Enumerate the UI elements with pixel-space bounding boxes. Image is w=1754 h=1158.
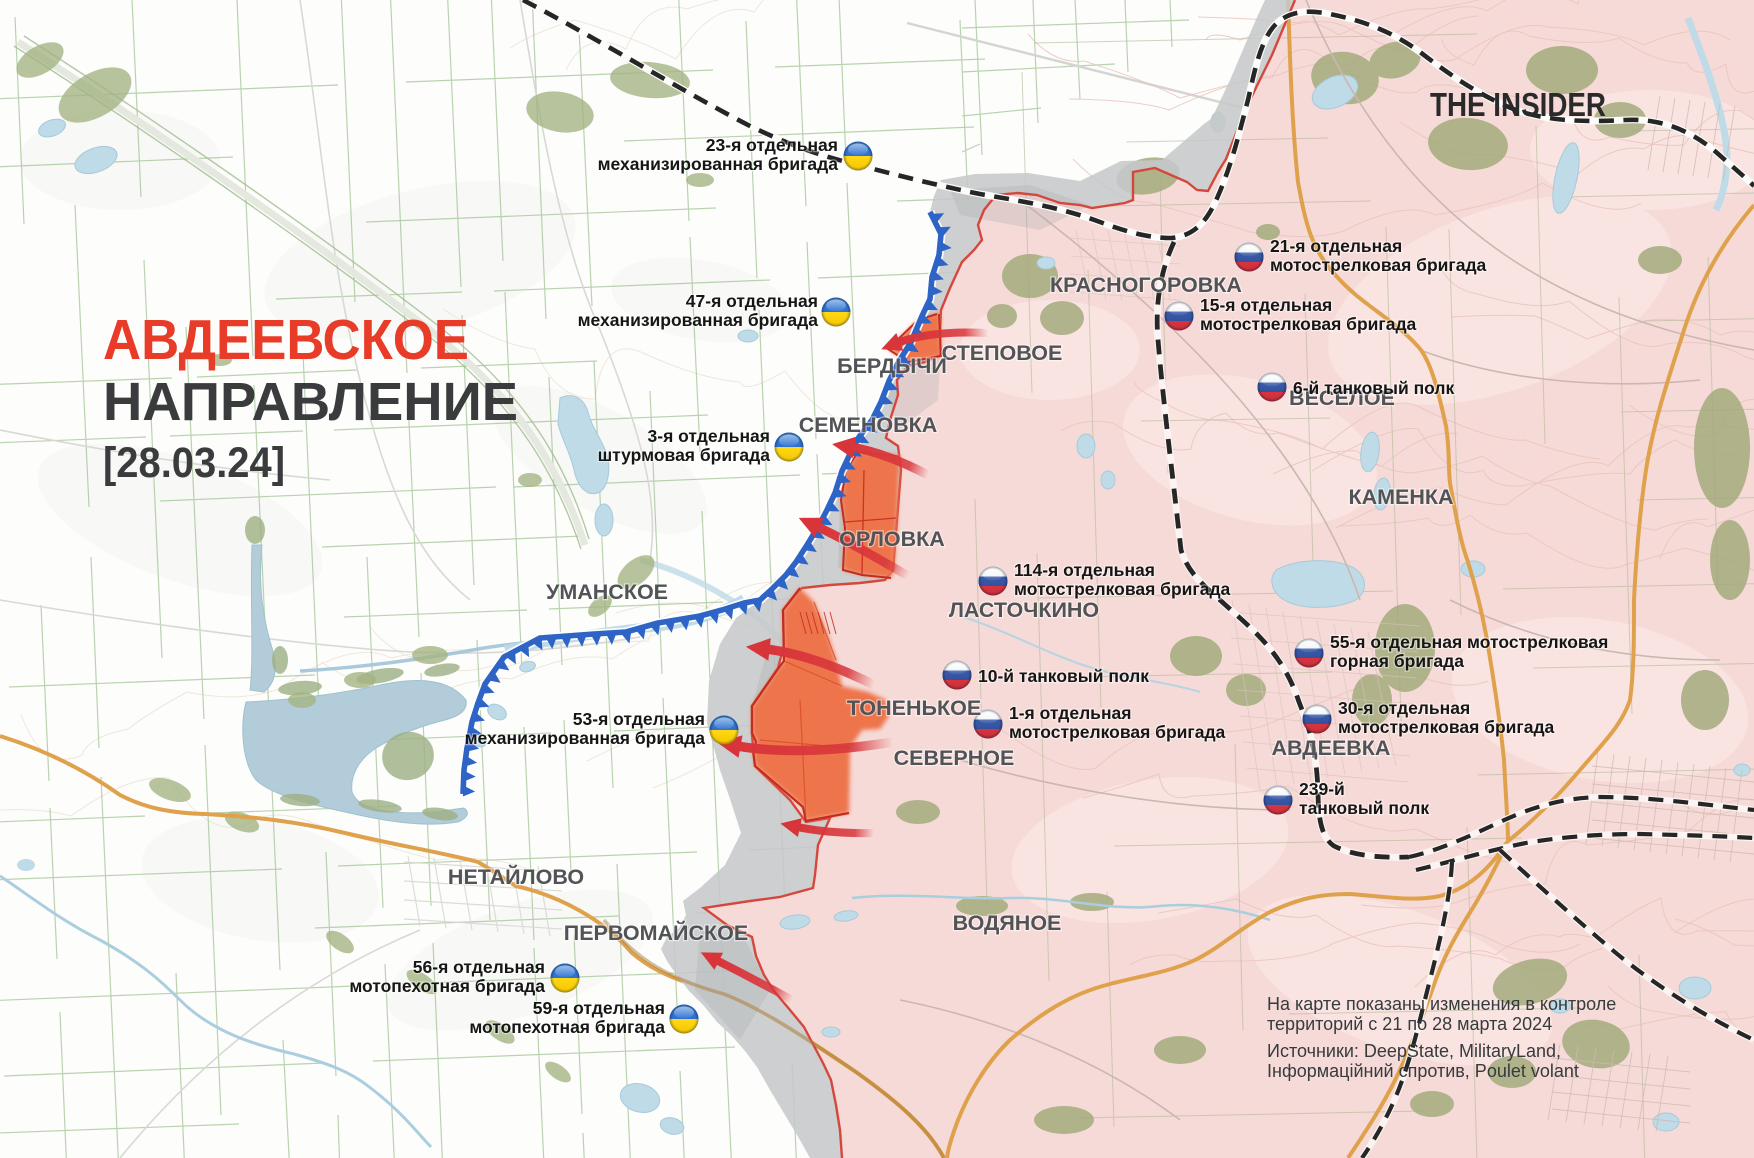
- svg-text:механизированная бригада: механизированная бригада: [465, 728, 706, 748]
- svg-text:мотострелковая бригада: мотострелковая бригада: [1014, 579, 1231, 599]
- svg-text:КРАСНОГОРОВКА: КРАСНОГОРОВКА: [1050, 273, 1242, 297]
- svg-text:КАМЕНКА: КАМЕНКА: [1348, 485, 1453, 509]
- svg-text:15-я отдельная: 15-я отдельная: [1200, 295, 1332, 315]
- svg-text:59-я отдельная: 59-я отдельная: [533, 998, 665, 1018]
- svg-text:мотопехотная бригада: мотопехотная бригада: [469, 1017, 665, 1037]
- svg-text:56-я отдельная: 56-я отдельная: [413, 957, 545, 977]
- svg-text:23-я отдельная: 23-я отдельная: [706, 135, 838, 155]
- svg-text:21-я отдельная: 21-я отдельная: [1270, 236, 1402, 256]
- svg-text:3-я отдельная: 3-я отдельная: [648, 426, 770, 446]
- svg-text:6-й танковый полк: 6-й танковый полк: [1293, 378, 1455, 398]
- svg-text:55-я отдельная мотострелковая: 55-я отдельная мотострелковая: [1330, 632, 1608, 652]
- svg-text:мотострелковая бригада: мотострелковая бригада: [1009, 722, 1226, 742]
- svg-text:30-я отдельная: 30-я отдельная: [1338, 698, 1470, 718]
- svg-text:НЕТАЙЛОВО: НЕТАЙЛОВО: [448, 864, 584, 889]
- svg-text:47-я отдельная: 47-я отдельная: [686, 291, 818, 311]
- svg-text:ОРЛОВКА: ОРЛОВКА: [839, 527, 945, 551]
- svg-text:239-й: 239-й: [1299, 779, 1345, 799]
- svg-text:THE INSIDER: THE INSIDER: [1430, 86, 1606, 123]
- svg-text:горная бригада: горная бригада: [1330, 651, 1464, 671]
- svg-text:[28.03.24]: [28.03.24]: [103, 439, 285, 487]
- svg-text:СТЕПОВОЕ: СТЕПОВОЕ: [942, 341, 1063, 365]
- svg-text:АВДЕЕВКА: АВДЕЕВКА: [1272, 736, 1391, 760]
- svg-text:Інформаційний спротив, Poulet: Інформаційний спротив, Poulet volant: [1267, 1061, 1579, 1081]
- svg-text:1-я отдельная: 1-я отдельная: [1009, 703, 1131, 723]
- svg-text:мотопехотная бригада: мотопехотная бригада: [349, 976, 545, 996]
- svg-text:БЕРДЫЧИ: БЕРДЫЧИ: [837, 354, 947, 378]
- svg-text:10-й танковый полк: 10-й танковый полк: [978, 666, 1149, 686]
- svg-text:штурмовая бригада: штурмовая бригада: [598, 445, 771, 465]
- svg-text:танковый полк: танковый полк: [1299, 798, 1429, 818]
- svg-text:ПЕРВОМАЙСКОЕ: ПЕРВОМАЙСКОЕ: [564, 920, 748, 945]
- svg-text:114-я отдельная: 114-я отдельная: [1014, 560, 1155, 580]
- svg-text:УМАНСКОЕ: УМАНСКОЕ: [546, 580, 668, 604]
- svg-text:На карте показаны изменения в: На карте показаны изменения в контроле: [1267, 994, 1616, 1014]
- svg-text:механизированная бригада: механизированная бригада: [578, 310, 819, 330]
- svg-text:АВДЕЕВСКОЕ: АВДЕЕВСКОЕ: [103, 308, 469, 372]
- svg-text:механизированная бригада: механизированная бригада: [598, 154, 839, 174]
- svg-text:мотострелковая бригада: мотострелковая бригада: [1270, 255, 1487, 275]
- svg-text:ТОНЕНЬКОЕ: ТОНЕНЬКОЕ: [847, 696, 981, 720]
- svg-text:мотострелковая бригада: мотострелковая бригада: [1200, 314, 1417, 334]
- svg-text:СЕВЕРНОЕ: СЕВЕРНОЕ: [894, 746, 1015, 770]
- svg-text:Источники: DeepState, Military: Источники: DeepState, MilitaryLand,: [1267, 1041, 1561, 1061]
- svg-text:ВОДЯНОЕ: ВОДЯНОЕ: [953, 911, 1062, 935]
- svg-text:НАПРАВЛЕНИЕ: НАПРАВЛЕНИЕ: [103, 372, 518, 432]
- svg-text:СЕМЕНОВКА: СЕМЕНОВКА: [799, 413, 938, 437]
- svg-text:территорий с 21 по 28 марта 20: территорий с 21 по 28 марта 2024: [1267, 1014, 1552, 1034]
- svg-text:ЛАСТОЧКИНО: ЛАСТОЧКИНО: [949, 598, 1099, 622]
- svg-text:53-я отдельная: 53-я отдельная: [573, 709, 705, 729]
- svg-text:мотострелковая бригада: мотострелковая бригада: [1338, 717, 1555, 737]
